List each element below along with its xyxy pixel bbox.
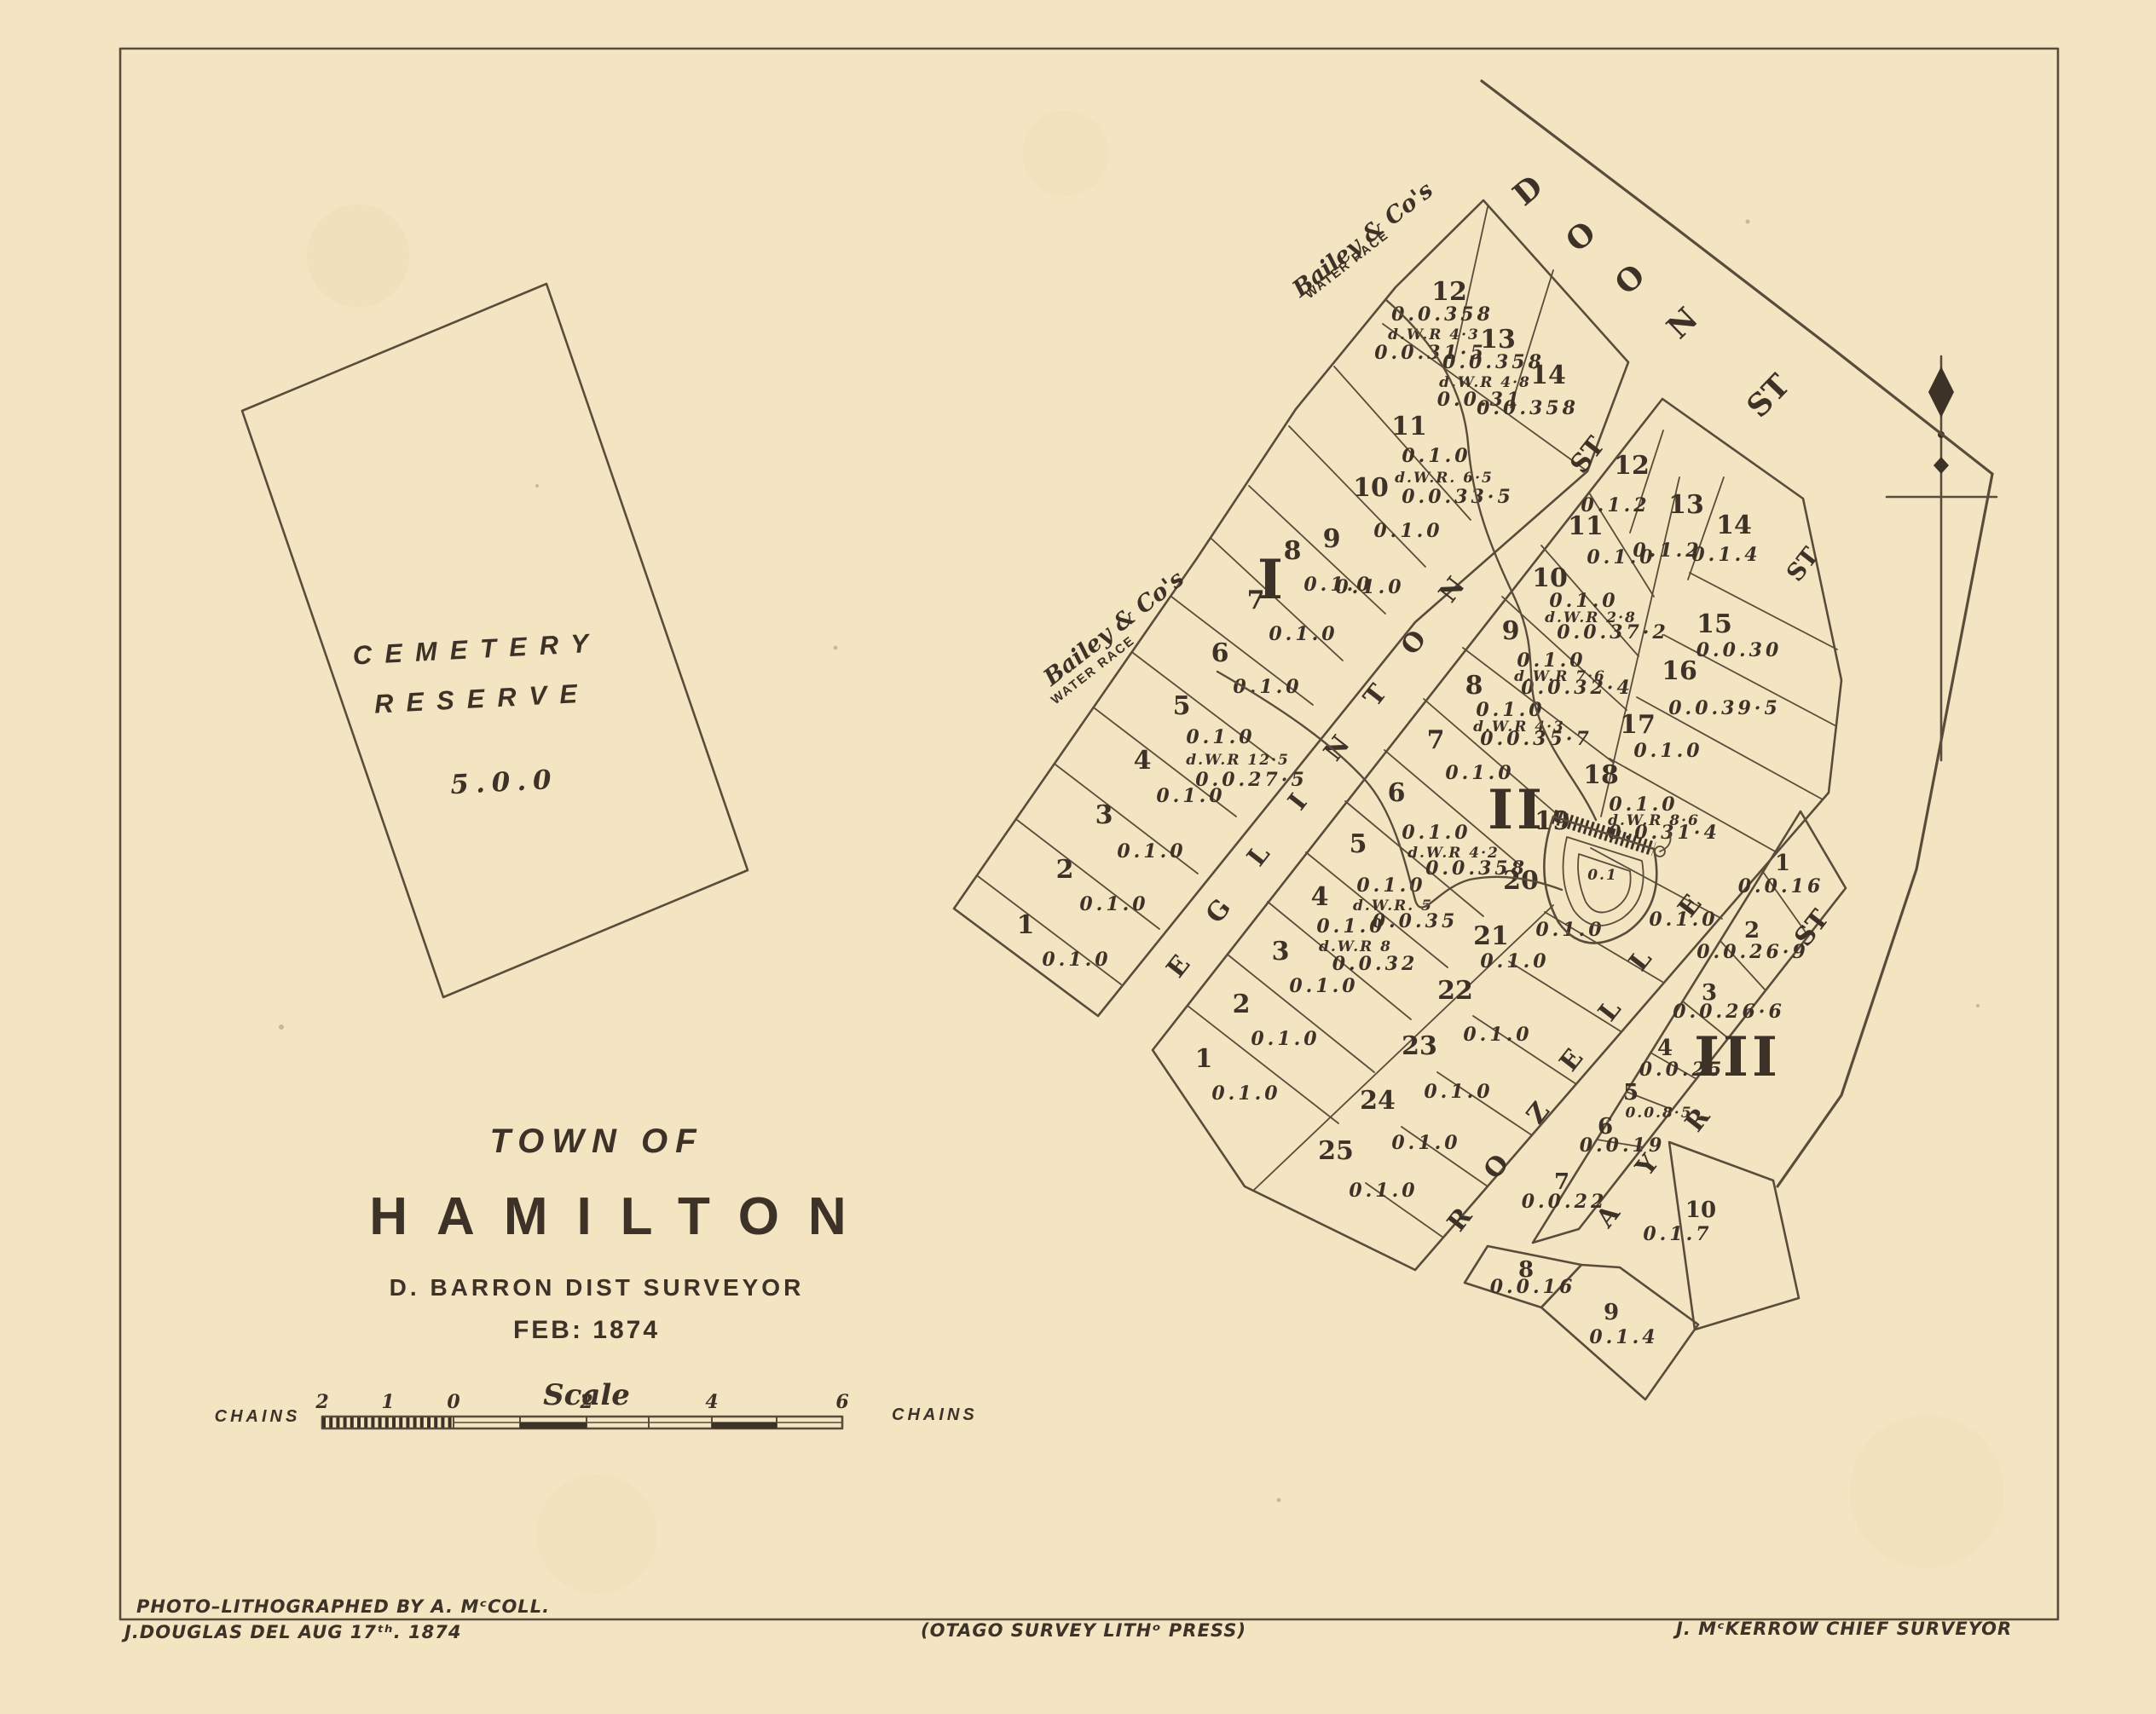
lot-II-24-area: 0.1.0	[1391, 1132, 1460, 1154]
lot-I-3-number: 3	[1095, 800, 1113, 830]
lot-II-6-number: 6	[1388, 778, 1406, 808]
lot-II-4-area: 0.0.32	[1332, 953, 1419, 975]
scale-tick: 1	[381, 1391, 394, 1413]
lot-II-25-area: 0.1.0	[1349, 1180, 1418, 1202]
lot-III-3-area: 0.0.26·6	[1673, 1001, 1785, 1023]
lot-II-1-number: 1	[1195, 1044, 1213, 1074]
lot-I-9-number: 9	[1323, 524, 1341, 554]
lot-III-8-area: 0.0.16	[1490, 1276, 1576, 1298]
scale-unit-right: CHAINS	[892, 1405, 978, 1424]
scale-tick: 2	[315, 1391, 328, 1413]
lot-III-10-area: 0.1.7	[1643, 1223, 1712, 1245]
lot-II-22-area: 0.1.0	[1463, 1024, 1532, 1046]
lot-I-14-number: 14	[1530, 361, 1566, 390]
lot-II-8-number: 8	[1465, 671, 1483, 701]
lot-I-6-number: 6	[1211, 638, 1229, 668]
lot-I-2-area: 0.1.0	[1079, 893, 1148, 915]
lot-I-10-area: 0.1.0	[1373, 520, 1442, 542]
lot-II-5-number: 5	[1350, 829, 1367, 859]
lot-II-14-area: 0.1.4	[1691, 544, 1760, 566]
lot-I-9-area: 0.1.0	[1335, 576, 1404, 598]
lot-I-13-number: 13	[1480, 325, 1516, 355]
lot-III-10-number: 10	[1685, 1197, 1716, 1223]
cemetery-area: 5.0.0	[449, 765, 558, 801]
lot-I-11-area: 0.1.0	[1402, 445, 1471, 467]
block-numeral-II: II	[1488, 778, 1546, 842]
lot-III-6-area: 0.0.19	[1580, 1134, 1666, 1157]
title-town-of: TOWN OF	[489, 1122, 703, 1160]
lot-II-3-number: 3	[1272, 937, 1290, 967]
lot-II-21-number: 21	[1473, 921, 1509, 951]
lot-II-9-number: 9	[1502, 616, 1520, 646]
footer-press: (OTAGO SURVEY LITHᵒ PRESS)	[921, 1620, 1246, 1641]
lot-II-4-number: 4	[1311, 882, 1329, 912]
lot-II-2-area: 0.1.0	[1251, 1028, 1320, 1050]
lot-I-7-area: 0.1.0	[1269, 623, 1338, 645]
lot-I-1-area: 0.1.0	[1042, 949, 1111, 971]
lot-II-21-area: 0.1.0	[1480, 950, 1549, 972]
lot-I-5-area: 0.1.0	[1186, 726, 1255, 748]
scale-tick: 6	[835, 1391, 848, 1413]
lot-II-12-area: 0.1.2	[1581, 494, 1650, 517]
title-date: FEB: 1874	[513, 1316, 660, 1344]
lot-II-3-area: 0.1.0	[1289, 975, 1358, 997]
lot-II-15-area: 0.0.30	[1696, 639, 1783, 661]
lot-III-1-number: 1	[1775, 851, 1790, 876]
lot-III-9-number: 9	[1604, 1300, 1619, 1325]
town-of-hamilton-map: CEMETERY RESERVE 5.0.0 TOWN OF HAMILTON …	[0, 0, 2156, 1714]
lot-II-7-number: 7	[1427, 725, 1445, 755]
lot-II-15-number: 15	[1696, 609, 1732, 639]
lot-II-10-area: 0.0.37·2	[1557, 621, 1669, 643]
lot-II-18-number: 18	[1583, 760, 1619, 790]
lot-I-11-number: 11	[1391, 412, 1427, 441]
scale-unit-left: CHAINS	[215, 1407, 301, 1426]
scale-tick: 0	[447, 1391, 460, 1413]
lot-II-22-number: 22	[1437, 976, 1473, 1006]
lot-II-20-area: 0.1.0	[1535, 919, 1604, 941]
lot-II-6-area: 0.1.0	[1402, 822, 1471, 844]
lot-II-23-area: 0.1.0	[1424, 1081, 1493, 1103]
lot-I-10-number: 10	[1353, 473, 1389, 503]
map-sheet: CEMETERY RESERVE 5.0.0 TOWN OF HAMILTON …	[0, 0, 2156, 1714]
lot-II-24-number: 24	[1360, 1086, 1396, 1116]
scale-bar-fill-segment	[712, 1423, 777, 1428]
footer-del: J.DOUGLAS DEL AUG 17ᵗʰ. 1874	[121, 1622, 461, 1642]
lot-I-12-number: 12	[1431, 277, 1467, 307]
lot-II-16-area: 0.0.39·5	[1668, 697, 1781, 719]
scale-tick: 2	[579, 1391, 592, 1413]
lot-II-16-number: 16	[1662, 656, 1697, 686]
block-numeral-III: III	[1694, 1025, 1781, 1089]
lot-I-12-area: 0.0.358	[1391, 303, 1494, 326]
lot-III-1-area: 0.0.16	[1738, 875, 1824, 897]
scale-tick: 4	[705, 1391, 718, 1413]
lot-II-13-number: 13	[1668, 490, 1704, 520]
block-numeral-I: I	[1257, 548, 1286, 612]
lot-II-12-number: 12	[1614, 451, 1650, 481]
lot-I-4-number: 4	[1134, 746, 1152, 776]
lot-II-1-area: 0.1.0	[1211, 1082, 1280, 1105]
lot-II-14-number: 14	[1716, 511, 1752, 540]
lot-II-8-area: 0.0.35·7	[1480, 728, 1592, 750]
lot-I-12-area: d.W.R 4·3	[1388, 326, 1480, 343]
lot-II-23-number: 23	[1402, 1031, 1437, 1061]
lot-I-5-number: 5	[1173, 691, 1191, 721]
lot-I-3-area: 0.1.0	[1117, 840, 1186, 863]
scale-bar-fill-segment	[520, 1423, 587, 1428]
lot-I-5-area: d.W.R 12·5	[1186, 752, 1290, 769]
lot-III-2-number: 2	[1744, 918, 1760, 944]
footer-litho: PHOTO–LITHOGRAPHED BY A. MᶜCOLL.	[136, 1596, 550, 1617]
lot-II-17-area: 0.1.0	[1633, 740, 1702, 762]
title-hamilton: HAMILTON	[369, 1187, 875, 1246]
lot-I-14-area: 0.0.358	[1477, 397, 1579, 419]
lot-III-2-area: 0.0.26·9	[1696, 941, 1809, 963]
lot-I-2-number: 2	[1056, 855, 1074, 885]
lot-I-13-area: 0.0.358	[1442, 351, 1545, 373]
lot-II-10-number: 10	[1532, 563, 1568, 593]
lot-II-25-number: 25	[1318, 1136, 1354, 1166]
lot-I-5-area: 0.0.27·5	[1195, 769, 1308, 791]
lot-III-9-area: 0.1.4	[1589, 1326, 1658, 1348]
lot-III-4-number: 4	[1657, 1036, 1673, 1061]
lot-II-5-area: 0.0.35	[1373, 910, 1459, 932]
lot-III-5-number: 5	[1623, 1080, 1639, 1105]
lot-II-9-area: 0.0.32·4	[1521, 677, 1633, 699]
lot-II-17-number: 17	[1620, 710, 1656, 740]
dam-label: 0.1	[1587, 867, 1618, 884]
title-surveyor: D. BARRON DIST SURVEYOR	[390, 1274, 805, 1301]
lot-II-5-area: 0.1.0	[1356, 874, 1425, 897]
lot-I-11-area: 0.0.33·5	[1402, 486, 1514, 508]
lot-I-1-number: 1	[1017, 910, 1035, 940]
lot-II-2-number: 2	[1233, 990, 1251, 1019]
footer-chief: J. MᶜKERROW CHIEF SURVEYOR	[1673, 1619, 2012, 1639]
lot-I-11-area: d.W.R. 6·5	[1395, 470, 1494, 487]
